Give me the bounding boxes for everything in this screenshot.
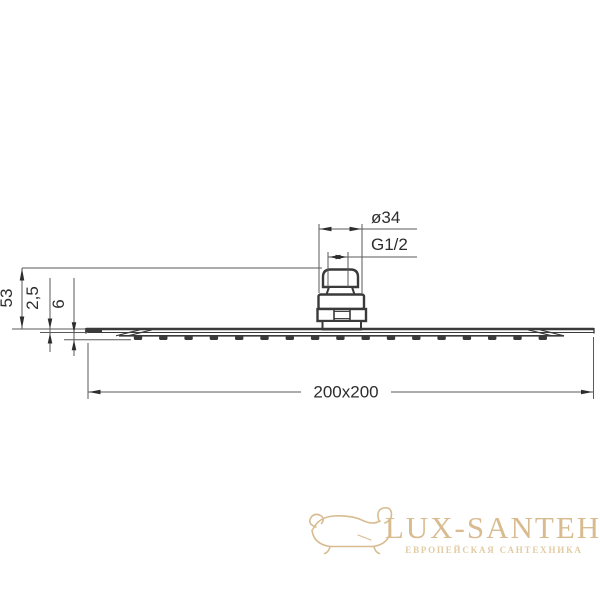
shower-head-technical-drawing: 53 2,5 6 ø34 G1/2 <box>0 0 600 600</box>
dimension-6: 6 <box>49 278 131 356</box>
shower-plate <box>86 328 594 340</box>
dimension-label-size: 200x200 <box>313 383 378 402</box>
dimension-label-thread: G1/2 <box>371 235 408 254</box>
watermark: LUX-SANTEH ЕВРОПЕЙСКАЯ САНТЕХНИКА <box>310 508 600 555</box>
connector-assembly <box>318 270 367 330</box>
arrowhead-down <box>72 322 77 333</box>
plate-left-tip-thick <box>86 329 102 332</box>
arrowhead-down <box>20 317 25 329</box>
dimension-label-2-5: 2,5 <box>23 286 42 310</box>
arrowhead-up <box>48 333 53 344</box>
drawing-canvas: 53 2,5 6 ø34 G1/2 <box>0 0 600 600</box>
watermark-tagline-text: ЕВРОПЕЙСКАЯ САНТЕХНИКА <box>405 545 582 555</box>
arrowhead-up <box>72 340 77 351</box>
dimension-label-53: 53 <box>0 289 16 308</box>
watermark-brand-text: LUX-SANTEH <box>385 510 600 545</box>
bathtub-icon <box>310 508 392 554</box>
arrowhead-left <box>89 390 101 395</box>
dimension-2-5: 2,5 <box>23 278 88 352</box>
arrowhead-down <box>48 319 53 330</box>
arrowhead-right <box>581 390 593 395</box>
dimension-label-6: 6 <box>49 299 68 308</box>
arrowhead-right <box>336 255 348 260</box>
connector-nut <box>318 309 367 321</box>
arrowhead-up <box>20 269 25 281</box>
dimension-200x200: 200x200 <box>88 337 594 402</box>
arrowhead-left <box>320 227 332 232</box>
dimension-label-diameter: ø34 <box>371 208 400 227</box>
arrowhead-right <box>350 227 362 232</box>
connector-body <box>319 295 365 310</box>
